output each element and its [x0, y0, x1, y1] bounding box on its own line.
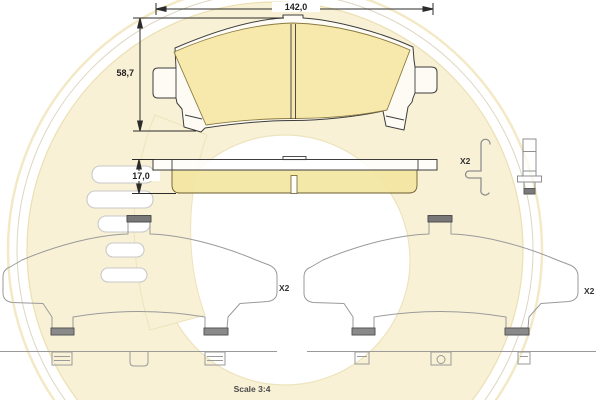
drawing-layers — [0, 0, 600, 400]
left-pad-quantity-label: X2 — [279, 283, 289, 293]
brake-pad-technical-drawing: 142,0 58,7 17,0 X2 X2 X2 Scale 3:4 — [0, 0, 600, 400]
width-dimension-label: 142,0 — [272, 2, 320, 12]
clip-quantity-label: X2 — [460, 156, 470, 166]
scale-label: Scale 3:4 — [208, 384, 296, 394]
bottom-edge-view-right — [307, 352, 596, 366]
height-dimension-label: 58,7 — [100, 68, 134, 78]
thickness-dimension-label: 17,0 — [122, 171, 160, 181]
pad-side-view — [153, 157, 437, 194]
right-pad-quantity-label: X2 — [584, 286, 594, 296]
